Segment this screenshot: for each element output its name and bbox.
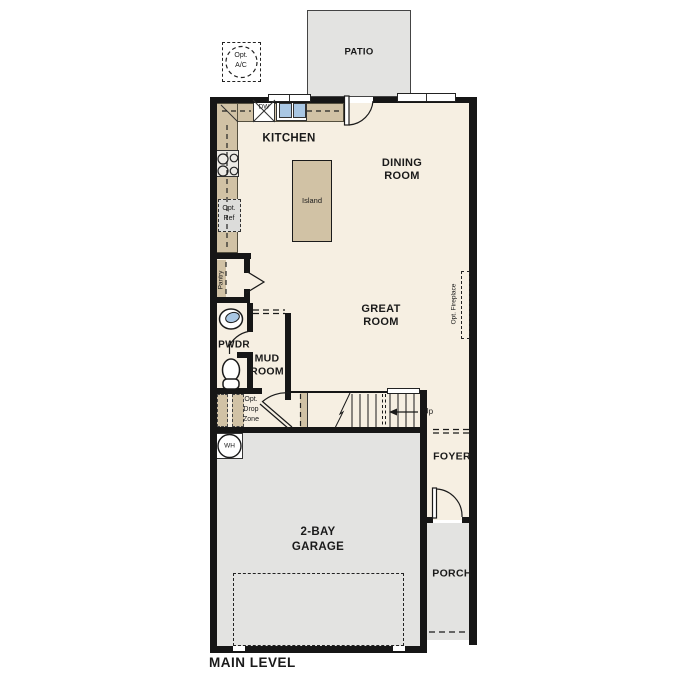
opt-fireplace-label: Opt. Fireplace	[450, 284, 459, 325]
upper-cabinet-dashed-lines	[222, 111, 341, 427]
patio-label: PATIO	[344, 46, 373, 59]
pantry-door	[246, 271, 264, 293]
opt-drop-zone-label: Opt. Drop Zone	[243, 395, 259, 425]
porch-label: PORCH	[432, 568, 471, 581]
mudroom-garage-door	[260, 393, 292, 429]
opt-ac-label: Opt. A/C	[234, 51, 247, 71]
dining-room-label: DINING ROOM	[382, 157, 422, 183]
pwdr-sink-icon	[220, 309, 243, 329]
water-heater-label: WH	[224, 442, 235, 451]
kitchen-label: KITCHEN	[262, 133, 315, 146]
mud-room-label: MUD ROOM	[250, 353, 284, 378]
stair-treads	[352, 394, 414, 427]
island-label: Island	[302, 196, 322, 206]
garage-label: 2-BAY GARAGE	[292, 525, 344, 555]
up-label: Up	[423, 407, 433, 417]
floor-plan: PATIO Opt. A/C KITCHEN DW Island DINING …	[0, 0, 687, 687]
pwdr-label: PWDR	[218, 339, 250, 352]
pantry-label: Pantry	[217, 271, 226, 290]
main-level-title: MAIN LEVEL	[209, 656, 296, 669]
great-room-label: GREAT ROOM	[361, 303, 400, 329]
range-burners-icon	[218, 154, 238, 176]
kitchen-detail-lines	[221, 94, 427, 122]
opt-ref-label: Opt. Ref	[222, 204, 235, 224]
plan-linework	[0, 0, 687, 687]
dishwasher-label: DW	[259, 103, 270, 112]
stair-break-line	[335, 393, 350, 428]
front-door	[433, 488, 463, 518]
foyer-label: FOYER	[433, 451, 471, 464]
opening-dashes	[253, 310, 469, 632]
patio-door	[345, 96, 374, 125]
toilet-icon	[223, 359, 240, 389]
